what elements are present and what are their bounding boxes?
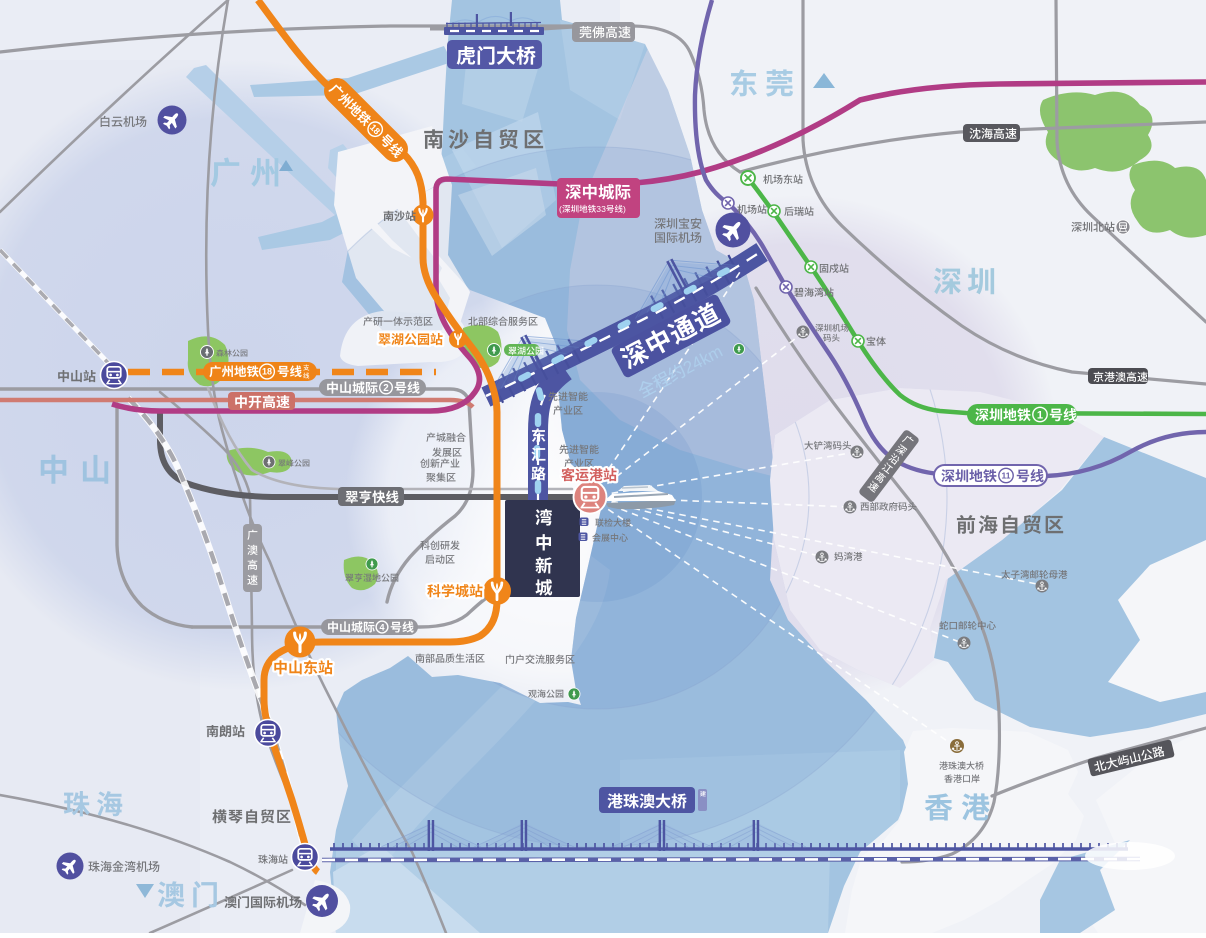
svg-text:2: 2 [383, 383, 389, 394]
svg-text:18: 18 [262, 367, 272, 377]
svg-text:(: ( [559, 204, 562, 214]
svg-text:1: 1 [1037, 410, 1043, 422]
svg-text:11: 11 [1002, 471, 1011, 481]
svg-text:): ) [623, 204, 626, 214]
svg-text:33: 33 [596, 204, 606, 214]
